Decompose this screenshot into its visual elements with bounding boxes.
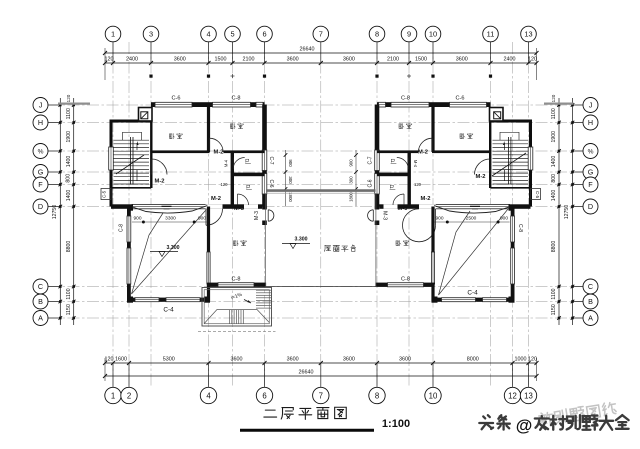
svg-text:8: 8 — [375, 30, 379, 39]
svg-text:120: 120 — [551, 94, 556, 102]
svg-text:M-2: M-2 — [421, 196, 431, 202]
svg-text:120: 120 — [66, 94, 71, 102]
svg-text:120: 120 — [221, 182, 229, 187]
svg-text:3.300: 3.300 — [167, 245, 180, 251]
svg-text:2400: 2400 — [504, 56, 516, 62]
svg-text:2100: 2100 — [387, 56, 399, 62]
svg-text:C-5: C-5 — [535, 191, 540, 199]
svg-text:C-7: C-7 — [268, 156, 274, 164]
svg-text:3300: 3300 — [165, 216, 176, 222]
svg-text:13: 13 — [524, 30, 532, 39]
svg-text:3600: 3600 — [231, 357, 243, 363]
svg-text:C-4: C-4 — [467, 290, 478, 297]
svg-text:9: 9 — [407, 30, 411, 39]
svg-text:8800: 8800 — [66, 241, 72, 253]
svg-text:3600: 3600 — [343, 56, 355, 62]
svg-text:1400: 1400 — [66, 156, 72, 168]
svg-text:C-8: C-8 — [231, 276, 240, 282]
svg-text:1100: 1100 — [66, 288, 72, 299]
svg-text:M-2: M-2 — [211, 196, 221, 202]
svg-text:C-8: C-8 — [517, 224, 523, 232]
svg-text:C-8: C-8 — [231, 95, 240, 101]
svg-text:F: F — [588, 180, 593, 189]
svg-text:8800: 8800 — [551, 241, 557, 253]
svg-text:7: 7 — [319, 30, 323, 39]
svg-text:H: H — [38, 118, 43, 127]
svg-text:6: 6 — [262, 391, 266, 400]
svg-text:1150: 1150 — [551, 304, 557, 315]
svg-text:1500: 1500 — [415, 56, 427, 62]
svg-text:3600: 3600 — [287, 357, 299, 363]
svg-text:3: 3 — [149, 30, 153, 39]
svg-text:800: 800 — [66, 174, 72, 183]
svg-text:13: 13 — [524, 391, 533, 400]
svg-text:2: 2 — [127, 391, 131, 400]
svg-text:M-3: M-3 — [234, 206, 245, 212]
svg-text:1600: 1600 — [115, 357, 127, 363]
svg-text:M-3: M-3 — [381, 211, 387, 220]
svg-text:J: J — [39, 101, 43, 110]
svg-text:F: F — [38, 180, 43, 189]
svg-text:800: 800 — [551, 174, 557, 183]
svg-text:B: B — [38, 297, 43, 306]
svg-text:8000: 8000 — [467, 357, 479, 363]
svg-text:@: @ — [516, 416, 533, 435]
svg-text:M-2: M-2 — [418, 150, 428, 156]
svg-text:4: 4 — [206, 30, 210, 39]
svg-text:300: 300 — [348, 176, 353, 184]
svg-text:C-6: C-6 — [368, 179, 374, 187]
svg-text:3600: 3600 — [456, 56, 468, 62]
svg-text:11: 11 — [487, 30, 495, 39]
svg-text:2100: 2100 — [243, 56, 255, 62]
svg-text:M-2: M-2 — [214, 150, 224, 156]
svg-text:120: 120 — [528, 56, 537, 62]
svg-text:3600: 3600 — [343, 357, 355, 363]
svg-text:G: G — [588, 168, 594, 177]
svg-text:900: 900 — [288, 159, 293, 167]
svg-text:12750: 12750 — [564, 205, 570, 220]
svg-text:1400: 1400 — [551, 190, 557, 202]
svg-text:D: D — [588, 202, 593, 211]
svg-text:5: 5 — [230, 30, 234, 39]
svg-text:120: 120 — [105, 357, 114, 363]
svg-text:1100: 1100 — [66, 108, 72, 119]
svg-text:C-6: C-6 — [455, 95, 464, 101]
svg-text:12750: 12750 — [52, 205, 58, 220]
svg-text:J: J — [589, 101, 593, 110]
svg-text:3.300: 3.300 — [295, 236, 308, 242]
svg-text:1000: 1000 — [515, 357, 527, 363]
svg-text:900: 900 — [500, 216, 508, 222]
svg-text:1150: 1150 — [66, 304, 72, 315]
svg-text:D: D — [38, 202, 43, 211]
svg-text:1900: 1900 — [551, 131, 557, 143]
svg-text:3600: 3600 — [399, 357, 411, 363]
svg-text:7: 7 — [319, 391, 323, 400]
svg-text:1100: 1100 — [551, 288, 557, 299]
svg-text:C-4: C-4 — [163, 307, 174, 314]
svg-text:1:100: 1:100 — [382, 418, 410, 430]
svg-text:900: 900 — [133, 216, 141, 222]
svg-text:26640: 26640 — [300, 47, 315, 53]
svg-text:M-2: M-2 — [476, 174, 486, 180]
svg-text:4: 4 — [206, 391, 211, 400]
svg-text:C-6: C-6 — [268, 179, 274, 187]
svg-text:900: 900 — [435, 216, 443, 222]
svg-text:6: 6 — [262, 30, 266, 39]
svg-text:10: 10 — [429, 30, 437, 39]
svg-text:1400: 1400 — [66, 190, 72, 202]
svg-text:1800: 1800 — [288, 192, 293, 202]
svg-text:M-4: M-4 — [223, 159, 228, 167]
svg-text:C-8: C-8 — [401, 276, 410, 282]
svg-text:3600: 3600 — [287, 56, 299, 62]
svg-text:120: 120 — [414, 182, 422, 187]
svg-text:B: B — [588, 297, 593, 306]
svg-text:A: A — [588, 314, 593, 323]
svg-text:H: H — [588, 118, 593, 127]
svg-text:5300: 5300 — [163, 357, 175, 363]
svg-text:M-3: M-3 — [398, 206, 409, 212]
svg-text:M-2: M-2 — [155, 179, 165, 185]
svg-text:C: C — [588, 282, 593, 291]
svg-text:12: 12 — [508, 391, 517, 400]
svg-text:1900: 1900 — [66, 131, 72, 143]
svg-text:1100: 1100 — [551, 108, 557, 119]
svg-text:1500: 1500 — [215, 56, 227, 62]
svg-text:%: % — [588, 148, 594, 155]
svg-text:300: 300 — [288, 176, 293, 184]
svg-text:26640: 26640 — [299, 369, 314, 375]
svg-text:2500: 2500 — [466, 216, 477, 222]
svg-text:10: 10 — [429, 391, 438, 400]
svg-text:%: % — [38, 148, 44, 155]
svg-text:120: 120 — [528, 357, 537, 363]
svg-text:1: 1 — [111, 391, 115, 400]
svg-text:C: C — [38, 282, 43, 291]
svg-text:120: 120 — [105, 56, 114, 62]
svg-text:8: 8 — [375, 391, 379, 400]
svg-text:A: A — [38, 314, 43, 323]
svg-text:900: 900 — [348, 159, 353, 167]
svg-text:C-8: C-8 — [401, 95, 410, 101]
svg-text:M-3: M-3 — [254, 211, 260, 220]
svg-text:C-7: C-7 — [368, 156, 374, 164]
svg-text:1400: 1400 — [551, 156, 557, 168]
svg-text:C-6: C-6 — [171, 95, 180, 101]
svg-text:2400: 2400 — [126, 56, 138, 62]
svg-text:G: G — [38, 168, 44, 177]
svg-text:3600: 3600 — [174, 56, 186, 62]
svg-text:1: 1 — [111, 30, 115, 39]
svg-text:C-5: C-5 — [102, 190, 107, 198]
svg-text:900: 900 — [198, 216, 206, 222]
svg-text:M-4: M-4 — [413, 160, 418, 168]
svg-text:C-8: C-8 — [119, 224, 125, 232]
